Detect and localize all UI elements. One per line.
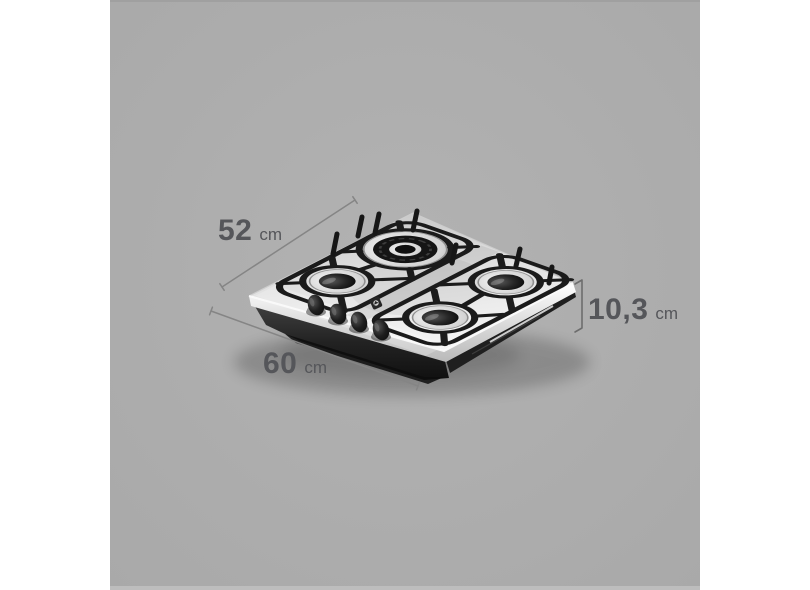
width-value: 60 bbox=[263, 349, 297, 379]
dimension-label-depth: 52 cm bbox=[218, 216, 282, 246]
height-value: 10,3 bbox=[588, 295, 648, 325]
dimension-bracket-height bbox=[575, 280, 582, 332]
dimension-label-width: 60 cm bbox=[263, 349, 327, 379]
product-image-canvas: 52 cm 60 cm 10,3 cm bbox=[0, 0, 810, 590]
height-unit: cm bbox=[655, 305, 678, 322]
depth-unit: cm bbox=[259, 226, 282, 243]
dimension-label-height: 10,3 cm bbox=[588, 295, 678, 325]
width-unit: cm bbox=[304, 359, 327, 376]
depth-value: 52 bbox=[218, 216, 252, 246]
cooktop-illustration bbox=[0, 0, 810, 590]
